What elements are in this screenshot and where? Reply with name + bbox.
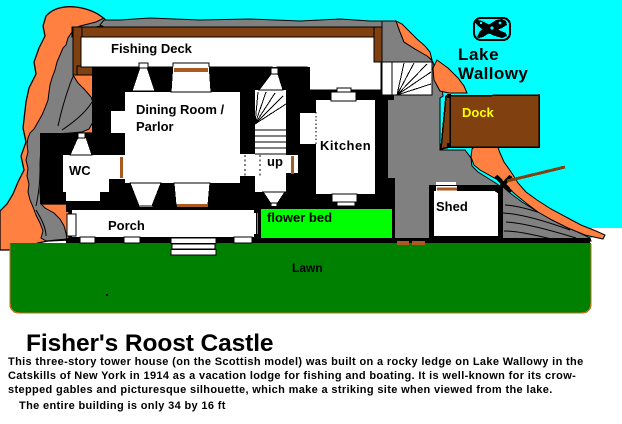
svg-text:The entire building is only 34: The entire building is only 34 by 16 ft [19,400,226,412]
svg-text:Lake: Lake [458,45,499,64]
svg-text:Parlor: Parlor [136,119,174,134]
svg-text:flower bed: flower bed [267,210,332,225]
svg-text:Fishing Deck: Fishing Deck [111,41,193,56]
svg-text:WC: WC [69,163,91,178]
svg-text:Dock: Dock [462,105,495,120]
svg-text:Catskills of New York in 1914: Catskills of New York in 1914 as a vacat… [8,370,576,382]
svg-text:up: up [267,154,283,169]
svg-text:Wallowy: Wallowy [458,64,528,83]
svg-text:Kitchen: Kitchen [320,138,371,153]
svg-text:Fisher's Roost Castle: Fisher's Roost Castle [26,330,273,357]
svg-text:Dining Room /: Dining Room / [136,102,224,117]
svg-text:stepped gables and picturesque: stepped gables and picturesque silhouett… [8,384,553,396]
svg-text:Lawn: Lawn [292,261,323,275]
svg-text:This three-story tower house (: This three-story tower house (on the Sco… [8,356,584,368]
svg-text:Porch: Porch [108,218,145,233]
svg-text:Shed: Shed [436,199,468,214]
